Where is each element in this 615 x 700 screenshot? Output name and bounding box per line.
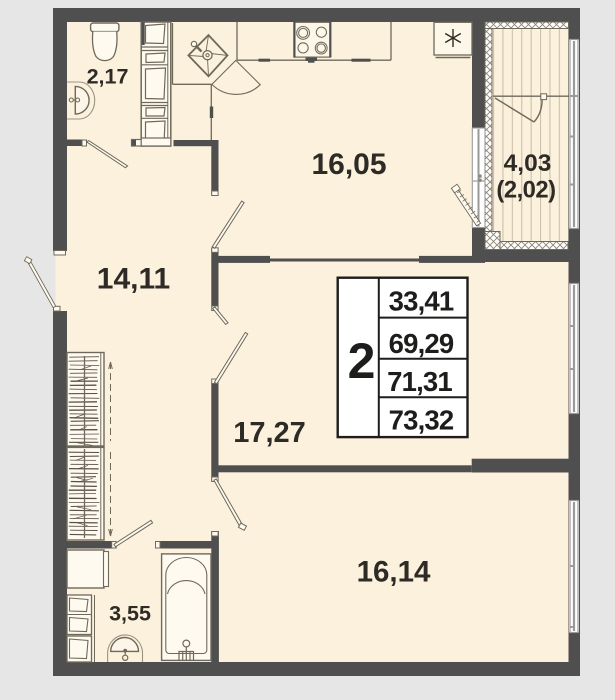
svg-text:(2,02): (2,02) xyxy=(496,177,555,204)
svg-text:33,41: 33,41 xyxy=(389,286,454,317)
svg-text:16,05: 16,05 xyxy=(311,148,386,181)
svg-text:16,14: 16,14 xyxy=(357,556,431,589)
svg-text:69,29: 69,29 xyxy=(389,328,454,359)
svg-text:2: 2 xyxy=(348,333,376,389)
svg-text:14,11: 14,11 xyxy=(97,263,170,296)
svg-text:73,32: 73,32 xyxy=(389,405,454,436)
svg-text:2,17: 2,17 xyxy=(87,65,129,89)
svg-text:4,03: 4,03 xyxy=(504,150,552,177)
svg-text:71,31: 71,31 xyxy=(387,366,452,397)
svg-text:3,55: 3,55 xyxy=(109,602,151,626)
svg-text:17,27: 17,27 xyxy=(233,417,306,449)
